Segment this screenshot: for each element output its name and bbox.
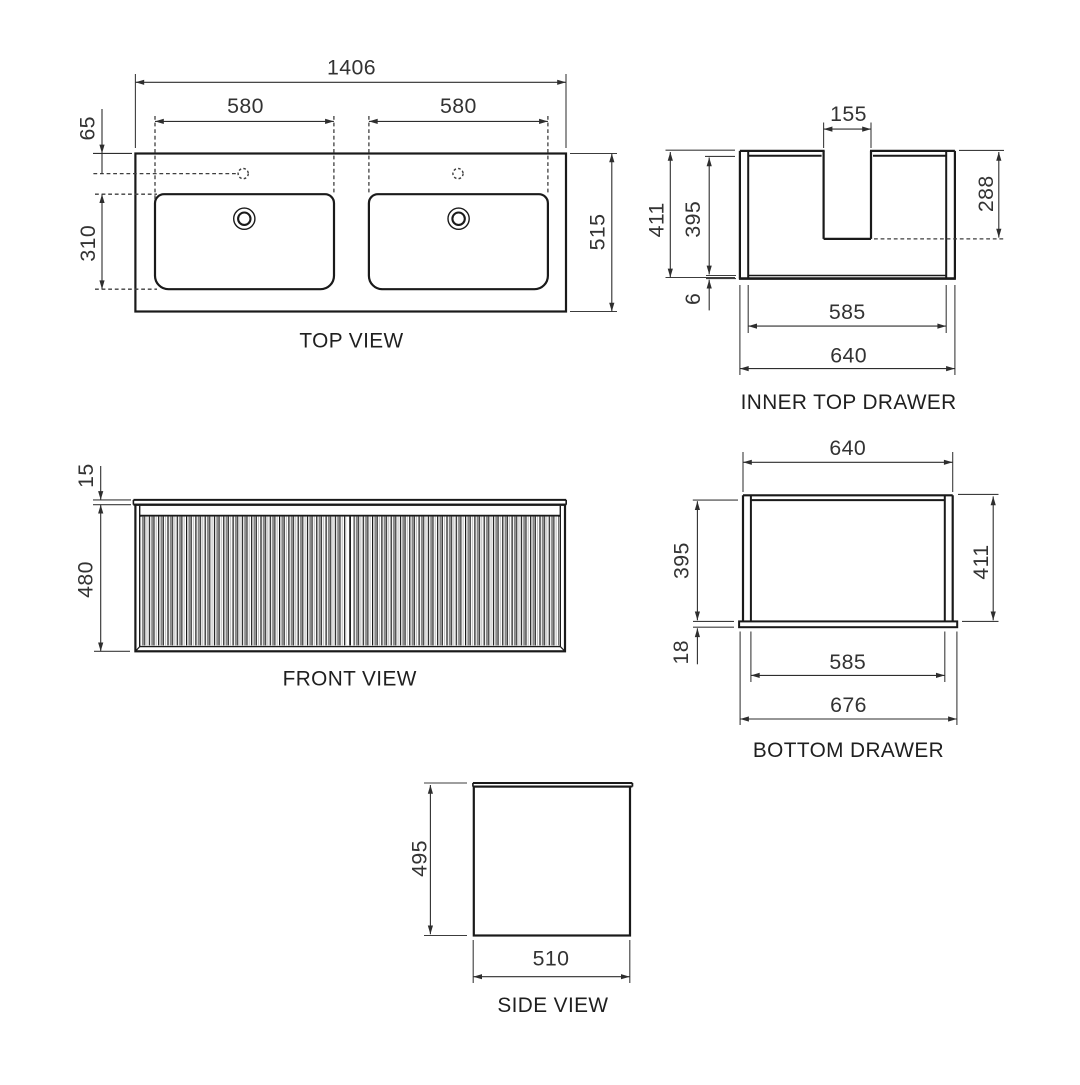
svg-text:TOP VIEW: TOP VIEW <box>299 330 403 353</box>
svg-text:580: 580 <box>440 94 477 118</box>
svg-text:676: 676 <box>830 693 867 717</box>
svg-text:585: 585 <box>829 300 866 324</box>
svg-text:6: 6 <box>681 293 705 305</box>
svg-text:395: 395 <box>670 542 694 579</box>
svg-text:411: 411 <box>969 544 993 579</box>
svg-text:1406: 1406 <box>327 56 376 80</box>
svg-text:FRONT VIEW: FRONT VIEW <box>283 667 417 690</box>
svg-text:580: 580 <box>227 94 264 118</box>
svg-text:510: 510 <box>533 947 570 971</box>
svg-text:BOTTOM DRAWER: BOTTOM DRAWER <box>753 739 944 762</box>
svg-text:480: 480 <box>74 561 98 598</box>
svg-text:310: 310 <box>76 225 100 262</box>
svg-text:155: 155 <box>830 102 867 126</box>
svg-text:411: 411 <box>644 202 668 237</box>
svg-text:495: 495 <box>407 840 431 877</box>
svg-text:288: 288 <box>974 175 998 212</box>
svg-text:15: 15 <box>74 463 98 488</box>
svg-text:18: 18 <box>669 640 693 665</box>
svg-text:INNER TOP DRAWER: INNER TOP DRAWER <box>741 391 957 414</box>
svg-text:515: 515 <box>586 214 610 251</box>
svg-text:65: 65 <box>75 116 99 141</box>
svg-text:640: 640 <box>830 344 867 368</box>
svg-text:395: 395 <box>681 201 705 238</box>
svg-text:585: 585 <box>829 650 866 674</box>
svg-text:640: 640 <box>829 436 866 460</box>
svg-text:SIDE VIEW: SIDE VIEW <box>497 994 608 1017</box>
